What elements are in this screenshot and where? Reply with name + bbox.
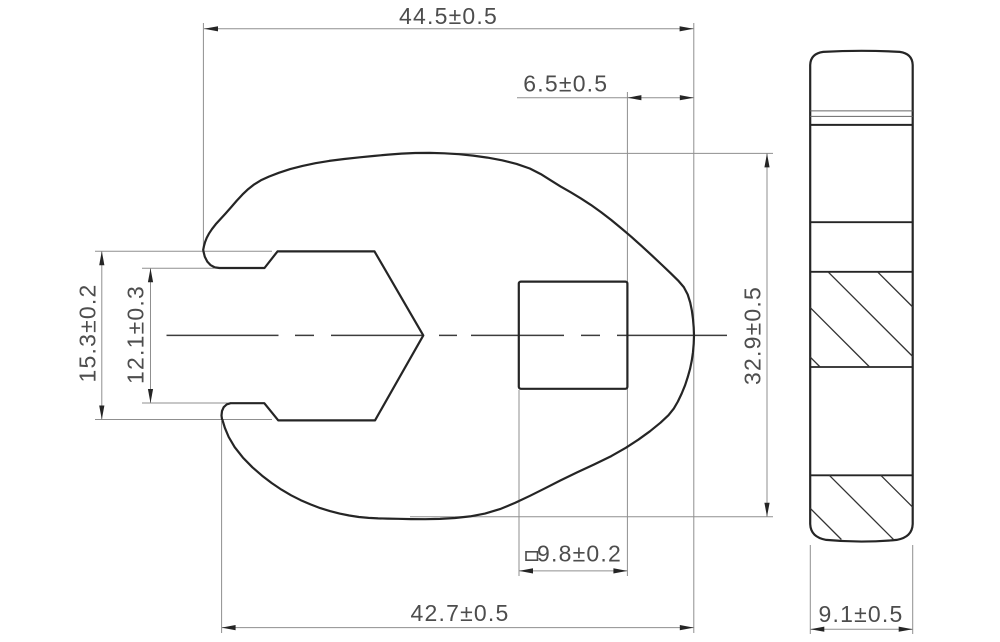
svg-text:32.9±0.5: 32.9±0.5 (740, 286, 766, 385)
svg-text:42.7±0.5: 42.7±0.5 (411, 600, 510, 626)
svg-text:9.8±0.2: 9.8±0.2 (537, 541, 622, 567)
svg-text:12.1±0.3: 12.1±0.3 (123, 285, 149, 384)
svg-text:15.3±0.2: 15.3±0.2 (75, 284, 101, 383)
svg-text:44.5±0.5: 44.5±0.5 (399, 3, 498, 29)
svg-text:9.1±0.5: 9.1±0.5 (819, 601, 904, 627)
svg-text:6.5±0.5: 6.5±0.5 (523, 71, 608, 97)
